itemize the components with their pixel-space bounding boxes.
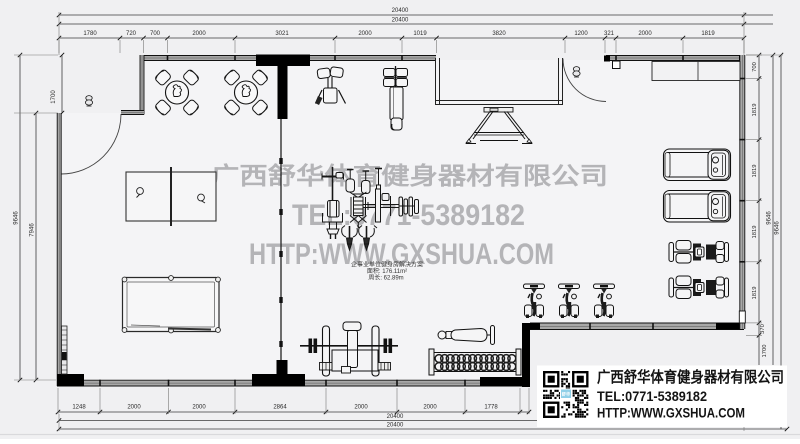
svg-text:周长: 62.89m: 周长: 62.89m	[368, 274, 403, 282]
svg-text:370: 370	[760, 324, 766, 334]
svg-text:1819: 1819	[752, 165, 758, 178]
svg-text:1819: 1819	[701, 31, 715, 37]
svg-text:TEL:0771-5389182: TEL:0771-5389182	[597, 389, 707, 404]
svg-text:20400: 20400	[392, 18, 409, 24]
svg-text:2000: 2000	[192, 31, 206, 37]
svg-text:20400: 20400	[392, 8, 409, 14]
svg-text:面积: 176.11m²: 面积: 176.11m²	[367, 267, 407, 275]
svg-text:1819: 1819	[752, 226, 758, 239]
svg-text:1778: 1778	[484, 405, 498, 411]
svg-text:720: 720	[126, 31, 137, 37]
svg-text:9646: 9646	[775, 221, 781, 235]
svg-text:3820: 3820	[492, 31, 506, 37]
svg-text:700: 700	[150, 31, 161, 37]
svg-text:9646: 9646	[14, 211, 20, 225]
svg-text:9646: 9646	[767, 211, 773, 225]
svg-text:舒华: 舒华	[562, 390, 571, 397]
svg-text:1819: 1819	[752, 287, 758, 300]
svg-text:20400: 20400	[387, 423, 404, 429]
svg-text:1700: 1700	[51, 90, 57, 104]
svg-text:2864: 2864	[273, 405, 287, 411]
svg-text:1819: 1819	[752, 104, 758, 117]
svg-text:700: 700	[752, 62, 758, 72]
svg-text:2000: 2000	[358, 31, 372, 37]
svg-text:2000: 2000	[638, 31, 652, 37]
svg-text:1200: 1200	[574, 31, 588, 37]
svg-text:广西舒华体育健身器材有限公司: 广西舒华体育健身器材有限公司	[597, 368, 784, 386]
svg-text:企事业单位健身房解决方案: 企事业单位健身房解决方案	[351, 261, 423, 269]
svg-text:1700: 1700	[762, 345, 768, 358]
svg-text:广西舒华体育健身器材有限公司: 广西舒华体育健身器材有限公司	[211, 162, 608, 190]
svg-text:2000: 2000	[423, 405, 437, 411]
svg-text:1019: 1019	[413, 31, 427, 37]
svg-text:1248: 1248	[72, 405, 86, 411]
svg-text:2000: 2000	[127, 405, 141, 411]
svg-text:20400: 20400	[387, 414, 404, 420]
svg-text:1780: 1780	[83, 31, 97, 37]
svg-text:2000: 2000	[192, 405, 206, 411]
svg-text:2000: 2000	[354, 405, 368, 411]
svg-text:321: 321	[604, 31, 615, 37]
svg-text:7946: 7946	[30, 223, 36, 237]
svg-text:HTTP:WWW.GXSHUA.COM: HTTP:WWW.GXSHUA.COM	[597, 406, 745, 421]
svg-text:3021: 3021	[275, 31, 289, 37]
